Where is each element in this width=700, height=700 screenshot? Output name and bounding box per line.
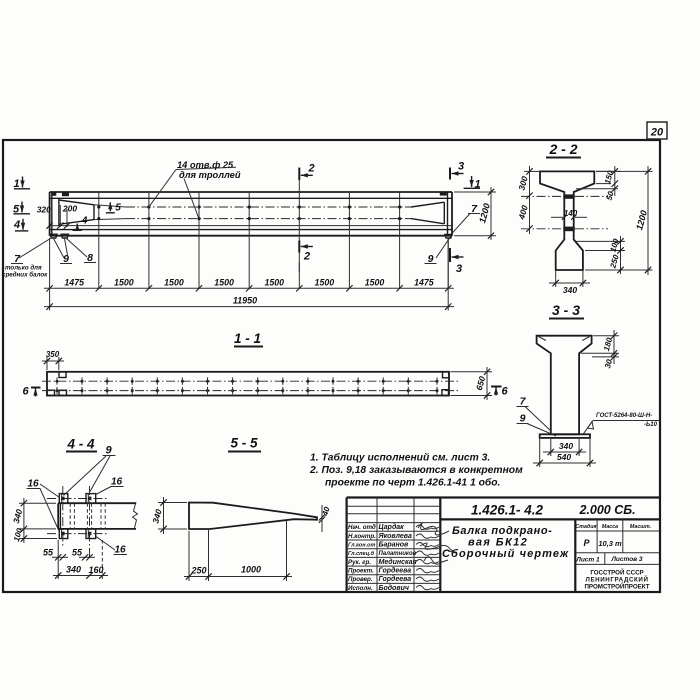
svg-text:-Ь10: -Ь10 — [644, 422, 658, 428]
svg-text:11950: 11950 — [233, 296, 257, 306]
svg-text:ГОСТ-5264-80-Ш-Н-: ГОСТ-5264-80-Ш-Н- — [596, 413, 652, 419]
svg-text:1500: 1500 — [214, 277, 234, 287]
svg-text:Листов 3: Листов 3 — [610, 556, 642, 563]
svg-text:340: 340 — [559, 441, 573, 451]
svg-text:Мединская: Мединская — [379, 558, 417, 566]
svg-text:340: 340 — [150, 508, 163, 525]
svg-text:Балка подкрано-: Балка подкрано- — [452, 525, 552, 537]
svg-text:540: 540 — [557, 452, 571, 462]
svg-text:9: 9 — [105, 445, 112, 457]
svg-text:1500: 1500 — [365, 277, 385, 287]
svg-text:4 - 4: 4 - 4 — [66, 437, 95, 452]
svg-text:Гл.кон.от: Гл.кон.от — [348, 543, 375, 549]
svg-text:Проект.: Проект. — [348, 568, 374, 575]
svg-text:1: 1 — [474, 179, 480, 191]
svg-text:Нач. отд: Нач. отд — [348, 524, 376, 531]
svg-text:1500: 1500 — [315, 277, 335, 287]
svg-text:Стадия: Стадия — [575, 524, 597, 530]
svg-text:55: 55 — [43, 548, 54, 558]
svg-text:3: 3 — [456, 263, 462, 275]
svg-text:6: 6 — [22, 386, 29, 398]
svg-text:средних балок: средних балок — [2, 272, 48, 279]
svg-text:Цардак: Цардак — [379, 523, 405, 531]
svg-text:Баранов: Баранов — [379, 542, 410, 549]
svg-text:16: 16 — [111, 477, 123, 488]
svg-text:Бодович: Бодович — [379, 584, 409, 592]
svg-text:Р: Р — [583, 538, 590, 548]
svg-text:Исполн.: Исполн. — [348, 585, 373, 592]
svg-text:340: 340 — [563, 285, 577, 295]
svg-text:650: 650 — [474, 375, 487, 392]
svg-text:160: 160 — [88, 565, 103, 575]
svg-text:4: 4 — [81, 216, 88, 227]
svg-text:2.000 СБ.: 2.000 СБ. — [578, 503, 635, 517]
svg-text:только для: только для — [5, 265, 42, 272]
svg-text:4: 4 — [13, 219, 20, 231]
svg-text:7: 7 — [520, 396, 527, 408]
svg-text:ЛЕНИНГРАДСКИЙ: ЛЕНИНГРАДСКИЙ — [586, 576, 649, 584]
svg-text:1500: 1500 — [114, 277, 134, 287]
svg-text:350: 350 — [46, 350, 60, 359]
svg-text:20: 20 — [650, 127, 664, 139]
svg-text:Лист 1: Лист 1 — [575, 557, 600, 564]
svg-text:2: 2 — [307, 163, 314, 175]
svg-text:3 - 3: 3 - 3 — [552, 302, 580, 318]
svg-text:ПРОМСТРОЙПРОЕКТ: ПРОМСТРОЙПРОЕКТ — [584, 583, 649, 591]
svg-text:Провер.: Провер. — [348, 576, 373, 583]
svg-text:30: 30 — [603, 358, 614, 369]
svg-text:1200: 1200 — [634, 209, 649, 231]
svg-text:55: 55 — [72, 548, 83, 558]
svg-text:1000: 1000 — [241, 565, 261, 575]
svg-text:2. Поз. 9,18 заказываются в ко: 2. Поз. 9,18 заказываются в конкретном — [309, 465, 523, 476]
svg-text:180: 180 — [602, 336, 614, 352]
svg-text:50: 50 — [605, 190, 616, 201]
svg-text:Гордеева: Гордеева — [379, 575, 412, 583]
svg-text:проекте по черт 1.426.1-41 1 о: проекте по черт 1.426.1-41 1 обо. — [325, 477, 500, 489]
svg-text:1500: 1500 — [164, 277, 184, 287]
svg-text:Н.контр.: Н.контр. — [348, 533, 376, 540]
svg-text:200: 200 — [62, 204, 77, 214]
svg-text:Масса: Масса — [602, 524, 618, 530]
svg-text:400: 400 — [516, 204, 530, 222]
svg-text:Рук. гр.: Рук. гр. — [348, 559, 371, 566]
svg-text:5 - 5: 5 - 5 — [230, 436, 258, 451]
svg-text:Масшт.: Масшт. — [630, 524, 652, 530]
svg-text:5: 5 — [115, 203, 121, 214]
svg-text:6: 6 — [501, 386, 508, 398]
svg-text:1500: 1500 — [264, 277, 284, 287]
svg-text:Сборочный чертеж: Сборочный чертеж — [442, 548, 569, 560]
svg-text:1 - 1: 1 - 1 — [234, 331, 261, 346]
svg-text:10,3 т: 10,3 т — [598, 539, 622, 548]
svg-text:250: 250 — [608, 253, 621, 270]
svg-text:140: 140 — [564, 209, 578, 218]
svg-text:Гл.спец.д: Гл.спец.д — [348, 551, 375, 557]
svg-text:Яковлева: Яковлева — [378, 533, 412, 540]
svg-text:300: 300 — [516, 175, 529, 192]
svg-text:340: 340 — [11, 508, 24, 525]
svg-text:340: 340 — [66, 565, 81, 575]
svg-text:1475: 1475 — [414, 277, 434, 287]
svg-text:1.426.1- 4.2: 1.426.1- 4.2 — [471, 503, 544, 518]
svg-text:вая БК12: вая БК12 — [468, 537, 528, 549]
svg-text:16: 16 — [114, 545, 126, 556]
svg-text:1. Таблицу исполнений см. лис: 1. Таблицу исполнений см. лист 3. — [310, 452, 490, 464]
svg-text:1200: 1200 — [477, 202, 492, 224]
svg-text:2: 2 — [303, 251, 310, 263]
svg-text:Палатников: Палатников — [379, 551, 417, 557]
svg-text:ГОССТРОЙ СССР: ГОССТРОЙ СССР — [590, 569, 643, 577]
svg-text:16: 16 — [27, 479, 39, 490]
svg-text:Гордеева: Гордеева — [379, 567, 412, 575]
svg-text:1475: 1475 — [64, 277, 84, 287]
svg-text:для троллей: для троллей — [179, 170, 241, 180]
svg-text:2 - 2: 2 - 2 — [548, 141, 577, 157]
svg-text:320: 320 — [37, 205, 51, 215]
svg-text:9: 9 — [520, 413, 526, 425]
svg-text:250: 250 — [190, 566, 206, 576]
svg-text:3: 3 — [458, 161, 464, 173]
